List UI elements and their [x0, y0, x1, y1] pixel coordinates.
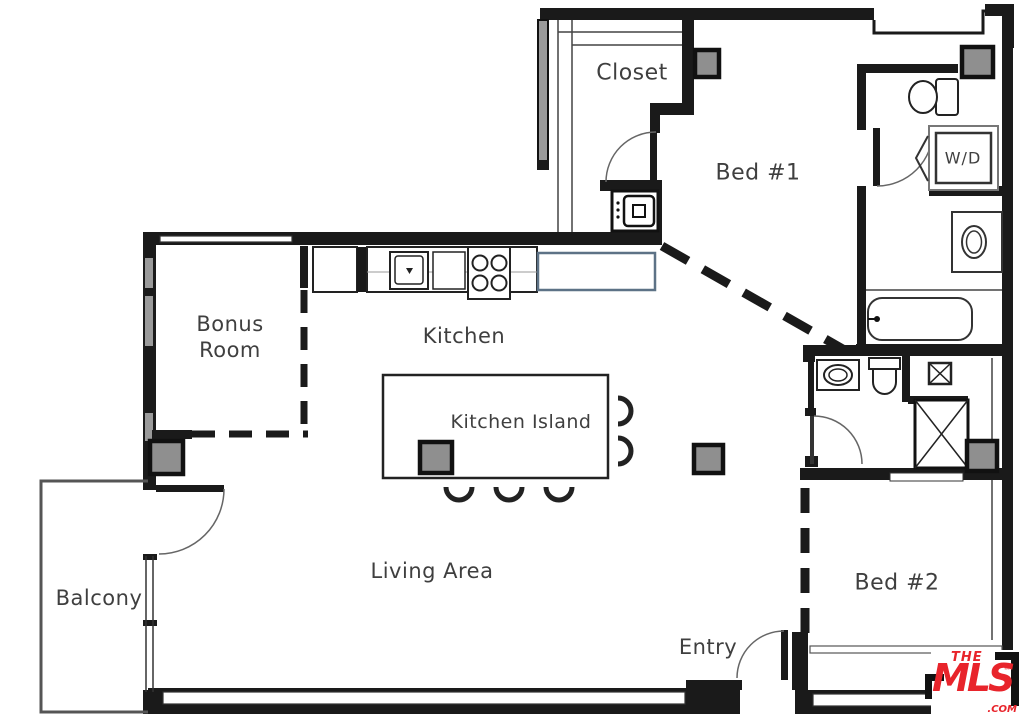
toilet-icon — [909, 79, 958, 115]
wall-niche — [874, 11, 1004, 33]
bathroom1 — [856, 64, 1003, 354]
bathroom2-door-arc — [814, 416, 862, 464]
label-kitchen: Kitchen — [423, 324, 505, 348]
entry-door — [737, 630, 788, 680]
refrigerator-icon — [538, 253, 655, 290]
bathroom1-door-arc — [877, 130, 933, 186]
diagonal-dashed-wall — [662, 246, 848, 352]
mls-logo-com: .COM — [987, 704, 1017, 715]
dishwasher-icon — [390, 252, 428, 289]
fireplace-icon — [612, 191, 658, 231]
mls-logo: THE MLS ™ .COM — [931, 650, 1019, 718]
balcony-door-leaf — [156, 485, 224, 492]
mls-logo-tm: ™ — [1003, 666, 1011, 675]
label-washer-dryer: W/D — [945, 149, 982, 168]
label-bonus-line2: Room — [196, 337, 263, 363]
bathtub-icon — [868, 298, 972, 340]
sink-cabinet — [433, 252, 465, 289]
label-entry: Entry — [679, 635, 737, 659]
floorplan-linework — [0, 0, 1020, 720]
label-bonus-room: Bonus Room — [196, 311, 263, 364]
vent-icon — [929, 363, 951, 384]
label-kitchen-island: Kitchen Island — [451, 411, 592, 433]
bathroom2-sink-icon — [817, 360, 859, 390]
kitchen-counter — [313, 247, 655, 299]
stove-icon — [468, 247, 510, 299]
balcony-door-arc — [159, 489, 224, 554]
entry-door-arc — [737, 631, 784, 678]
toilet2-icon — [869, 358, 900, 394]
bathroom-sink-icon — [952, 212, 1002, 272]
closet-door-arc — [606, 132, 656, 182]
label-bed1: Bed #1 — [715, 161, 800, 186]
label-bed2: Bed #2 — [854, 571, 939, 596]
label-closet: Closet — [596, 61, 668, 86]
shower-icon — [915, 400, 968, 468]
mls-logo-mls: MLS — [932, 656, 1012, 700]
kitchen-island-shape — [383, 375, 631, 500]
label-bonus-line1: Bonus — [196, 311, 263, 337]
bathroom2-door-leaf — [810, 416, 814, 464]
label-living-area: Living Area — [371, 559, 494, 583]
floor-plan: Closet Bed #1 Bonus Room Kitchen Kitchen… — [0, 0, 1020, 720]
label-balcony: Balcony — [56, 586, 143, 610]
